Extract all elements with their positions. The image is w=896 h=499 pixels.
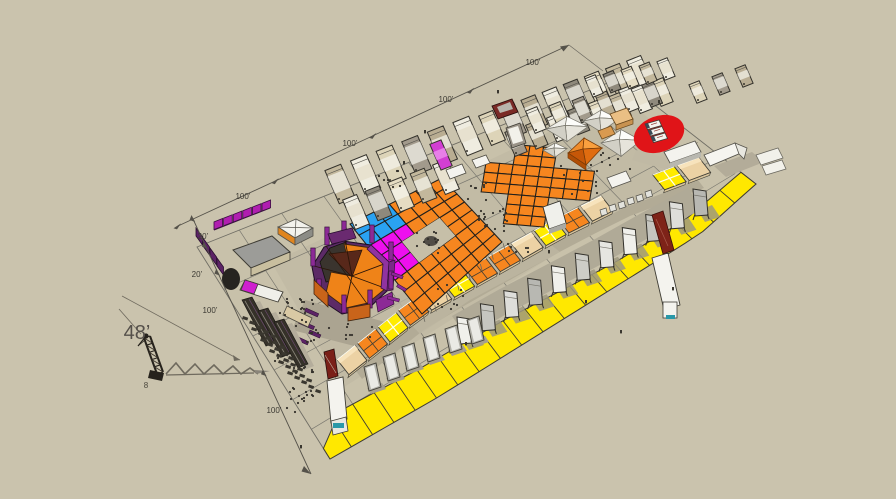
svg-text:20’: 20’ [192, 270, 203, 279]
svg-text:20’: 20’ [198, 232, 209, 241]
svg-text:100’: 100’ [235, 192, 250, 201]
svg-text:100’: 100’ [438, 95, 453, 104]
svg-text:100’: 100’ [342, 139, 357, 148]
svg-text:100’: 100’ [266, 406, 281, 415]
svg-text:8: 8 [144, 381, 149, 390]
svg-text:48’: 48’ [124, 322, 151, 344]
svg-text:100’: 100’ [202, 306, 217, 315]
svg-text:100’: 100’ [525, 58, 540, 67]
